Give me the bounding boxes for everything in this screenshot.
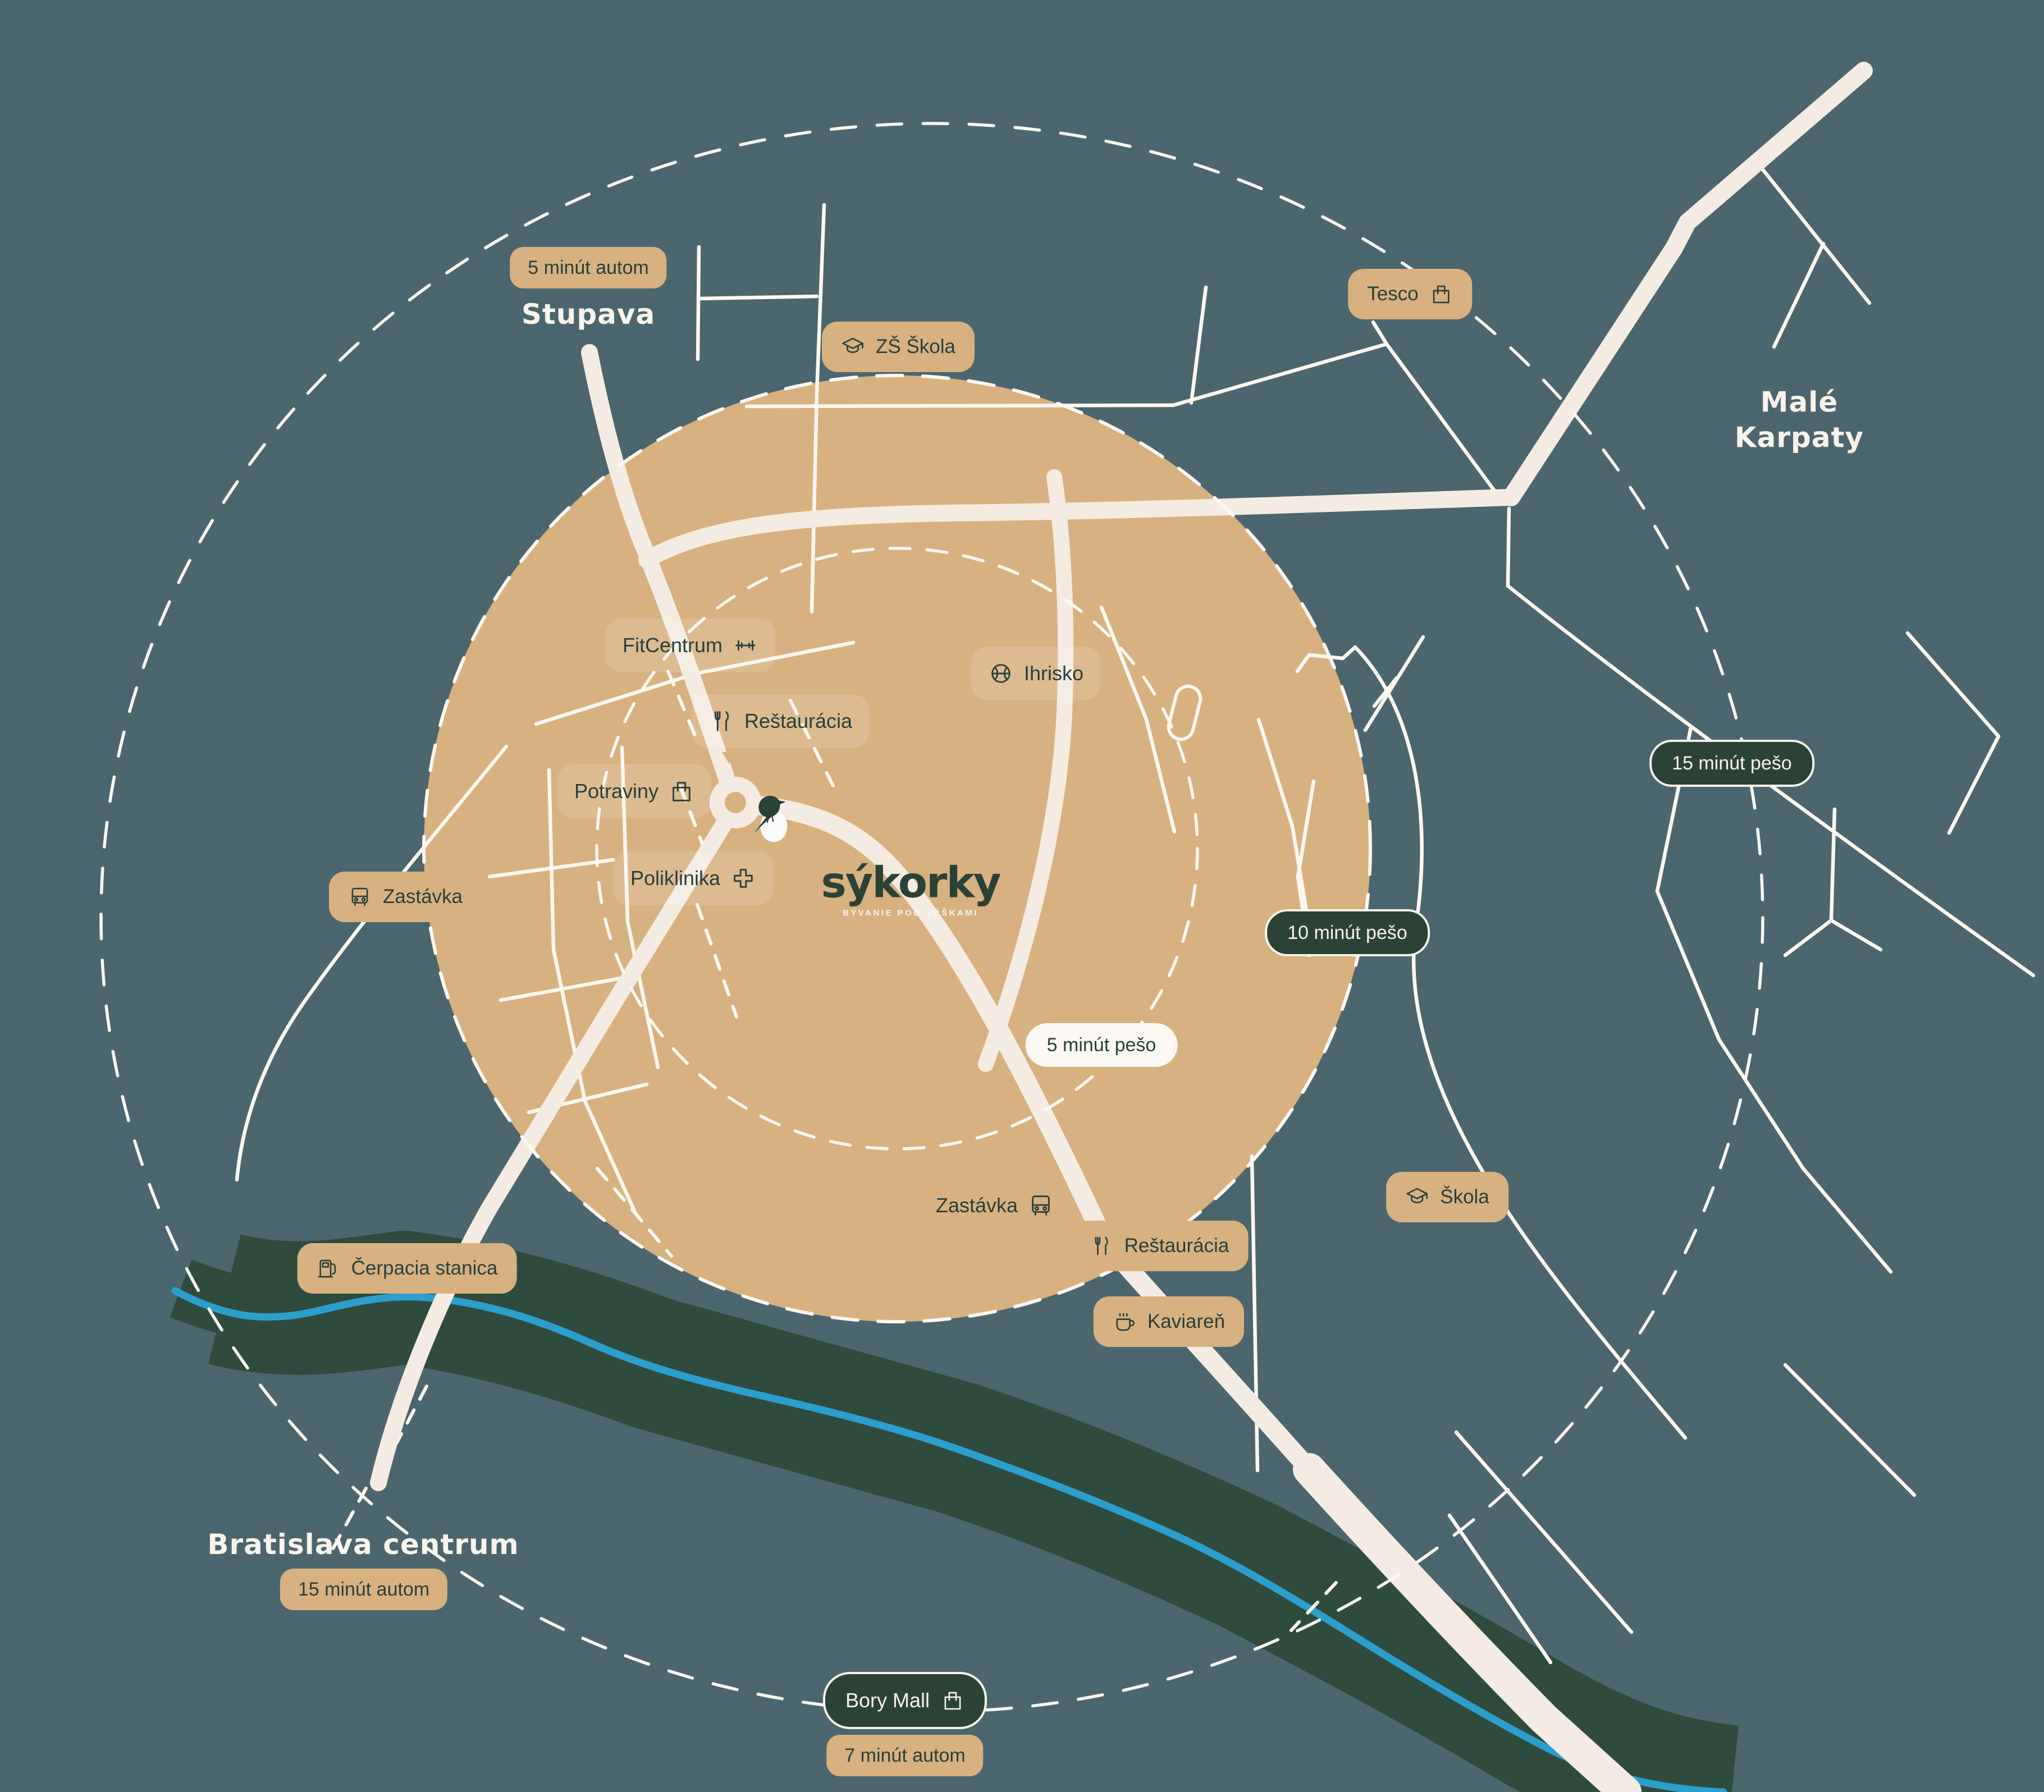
poi-poliklinika: Poliklinika — [614, 851, 773, 905]
poi-zs-skola: ZŠ Škola — [822, 322, 975, 372]
badge-stupava-drive-time: 5 minút autom — [510, 247, 666, 288]
badge-bratislava-drive-time: 15 minút autom — [280, 1569, 447, 1610]
poi-zastavka-west: Zastávka — [329, 872, 482, 922]
basketball-icon — [988, 661, 1014, 686]
fork-knife-icon — [1090, 1234, 1113, 1258]
place-bratislava-centrum: Bratislava centrum — [207, 1527, 519, 1562]
shopping-bag-icon — [941, 1689, 964, 1712]
fork-knife-icon — [708, 708, 734, 734]
graduation-cap-icon — [841, 335, 865, 359]
poi-zastavka-south: Zastávka — [919, 1179, 1071, 1232]
logo-title: sýkorky — [821, 861, 1000, 904]
badge-walk-15min: 15 minút pešo — [1649, 740, 1814, 787]
poi-ihrisko: Ihrisko — [971, 647, 1100, 700]
logo-subtitle: BÝVANIE POD VŔŠKAMI — [821, 909, 1000, 918]
badge-bory-drive-time: 7 minút autom — [826, 1735, 983, 1776]
badge-walk-5min: 5 minút pešo — [1026, 1023, 1178, 1067]
poi-bory-mall: Bory Mall — [823, 1672, 987, 1729]
poi-restauracia-east: Reštaurácia — [1071, 1221, 1249, 1271]
dumbbell-icon — [733, 633, 758, 658]
graduation-cap-icon — [1405, 1185, 1429, 1209]
poi-potraviny: Potraviny — [557, 764, 711, 818]
medical-cross-icon — [730, 865, 756, 891]
coffee-cup-icon — [1113, 1310, 1136, 1333]
map-stage: Stupava Malé Karpaty Bratislava centrum … — [0, 0, 2044, 1792]
fuel-pump-icon — [317, 1257, 340, 1280]
poi-fitcentrum: FitCentrum — [606, 618, 775, 672]
bus-icon — [1028, 1193, 1054, 1218]
sykorky-logo: sýkorky BÝVANIE POD VŔŠKAMI — [821, 861, 1000, 918]
badge-walk-10min: 10 minút pešo — [1265, 909, 1430, 956]
basemap — [0, 0, 2044, 1792]
place-stupava: Stupava — [522, 297, 655, 332]
bird-icon — [748, 787, 796, 836]
poi-kaviaren: Kaviareň — [1094, 1296, 1244, 1347]
poi-cerpacia-stanica: Čerpacia stanica — [298, 1243, 517, 1294]
shopping-bag-icon — [669, 778, 694, 804]
place-male-karpaty: Malé Karpaty — [1735, 385, 1864, 455]
poi-restauracia-center: Reštaurácia — [692, 694, 869, 748]
shopping-bag-icon — [1430, 282, 1453, 306]
poi-skola: Škola — [1386, 1172, 1508, 1222]
poi-tesco: Tesco — [1348, 269, 1472, 319]
bus-icon — [348, 885, 372, 909]
